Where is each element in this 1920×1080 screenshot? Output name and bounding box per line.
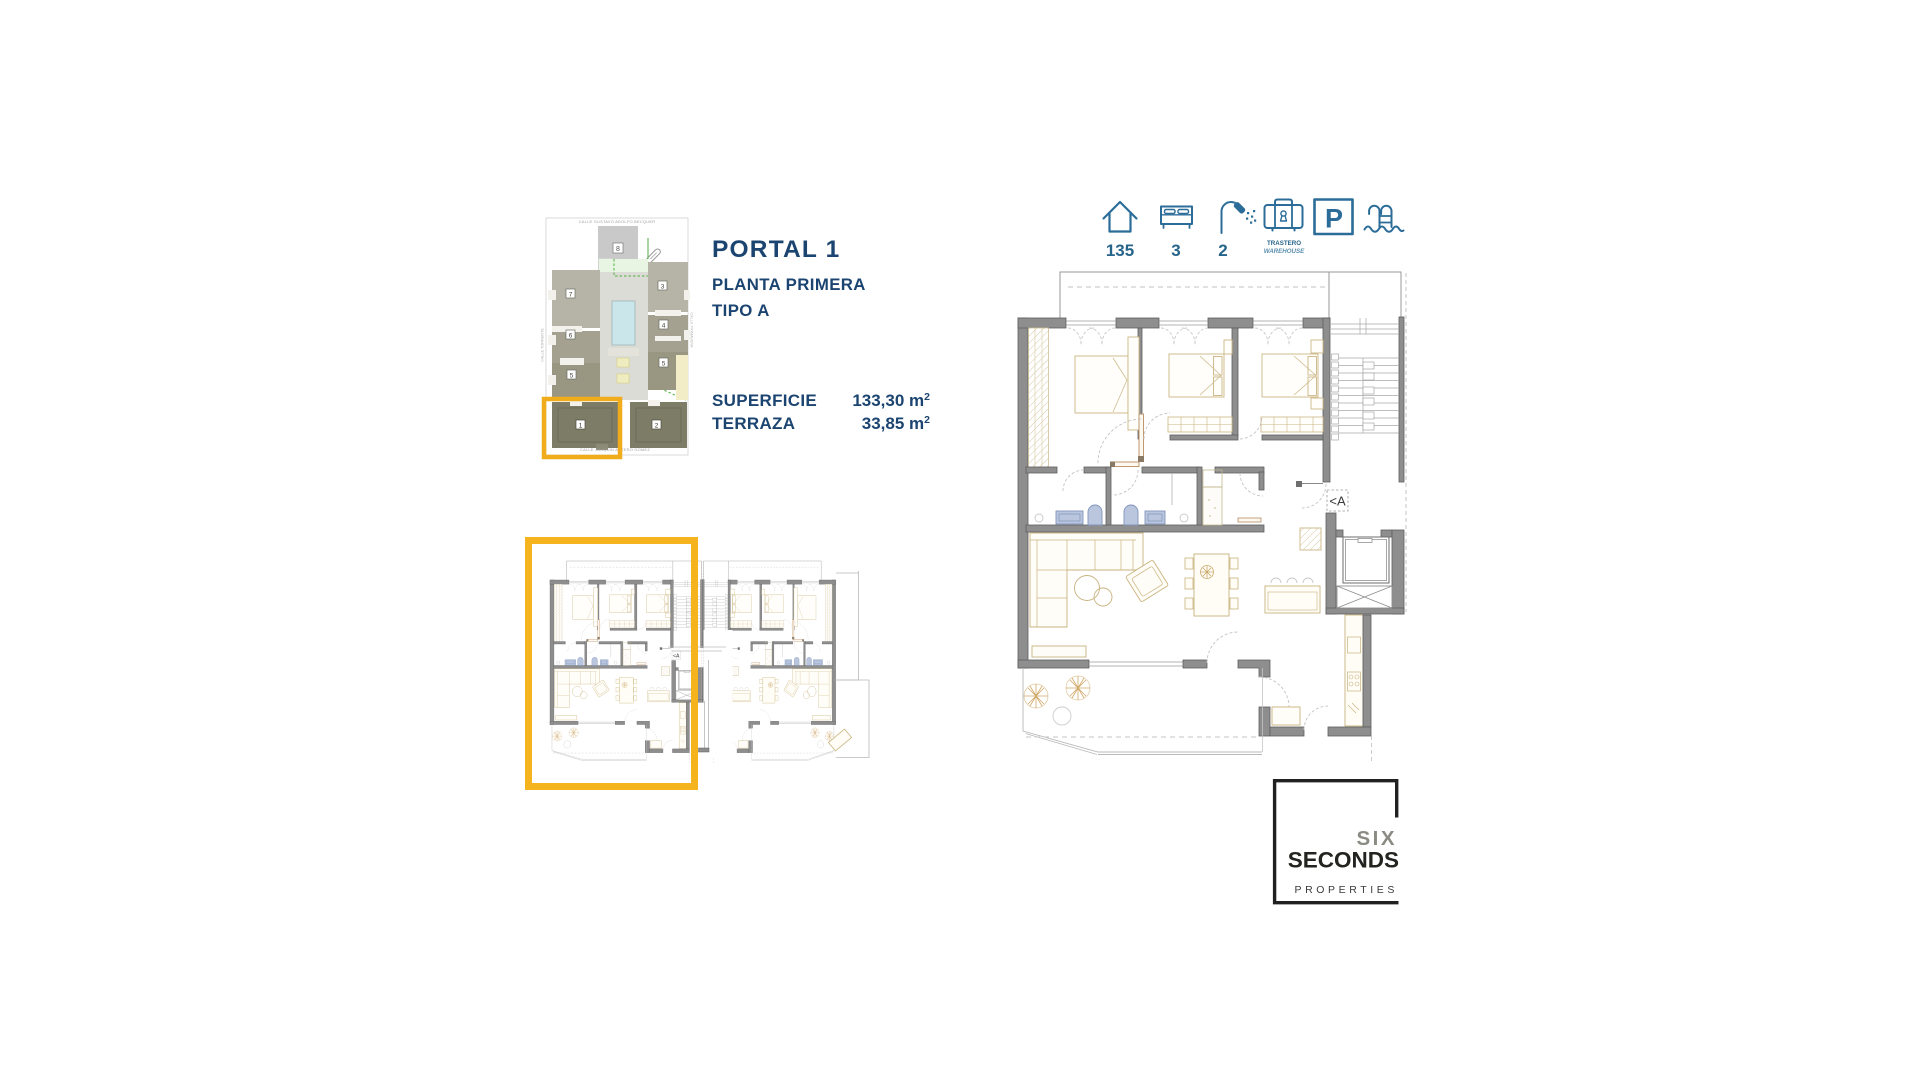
svg-text:PROPERTIES: PROPERTIES	[1295, 884, 1399, 896]
svg-text:CALLE PRIMAVERA: CALLE PRIMAVERA	[690, 312, 694, 348]
svg-text:WAREHOUSE: WAREHOUSE	[1264, 248, 1305, 255]
svg-text:6: 6	[569, 332, 573, 339]
svg-text:TRASTERO: TRASTERO	[1267, 240, 1301, 247]
svg-text:PORTAL 1: PORTAL 1	[712, 236, 841, 263]
svg-text:5: 5	[570, 372, 574, 379]
svg-text:PLANTA PRIMERA: PLANTA PRIMERA	[712, 275, 866, 294]
svg-text:7: 7	[569, 291, 573, 298]
svg-text:CALLE JOAQUIN ARTERO GOMEZ: CALLE JOAQUIN ARTERO GOMEZ	[580, 447, 650, 452]
svg-text:SECONDS: SECONDS	[1288, 848, 1399, 873]
svg-text:3: 3	[1171, 241, 1180, 260]
svg-text:TERRAZA: TERRAZA	[712, 414, 795, 433]
svg-text:P: P	[1325, 204, 1343, 234]
svg-text:1: 1	[579, 422, 583, 429]
svg-text:CALLE GUSTAVO ADOLFO BECQUE: CALLE GUSTAVO ADOLFO BECQUER	[579, 219, 656, 224]
svg-text:SUPERFICIE: SUPERFICIE	[712, 391, 817, 410]
svg-text:33,85 m2: 33,85 m2	[862, 414, 930, 433]
svg-text:8: 8	[616, 246, 620, 253]
svg-text:133,30 m2: 133,30 m2	[852, 391, 930, 410]
svg-text:2: 2	[1218, 241, 1227, 260]
svg-text:2: 2	[655, 422, 659, 429]
svg-text:4: 4	[662, 322, 666, 329]
svg-text:CALLE TORRENTE: CALLE TORRENTE	[541, 328, 545, 362]
svg-text:135: 135	[1106, 241, 1134, 260]
svg-text:3: 3	[661, 283, 665, 290]
svg-text:5: 5	[662, 360, 666, 367]
svg-text:TIPO A: TIPO A	[712, 301, 770, 320]
